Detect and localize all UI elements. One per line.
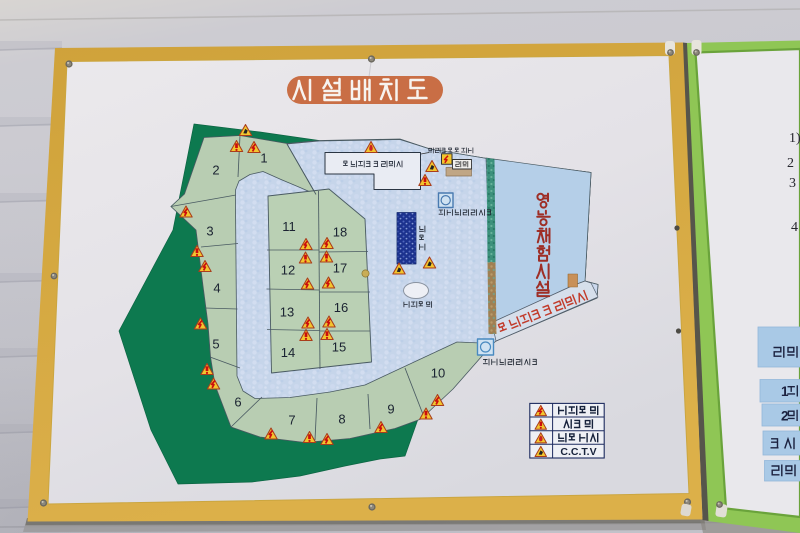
svg-text:13: 13 xyxy=(280,305,294,320)
svg-text:8: 8 xyxy=(338,412,345,427)
svg-text:16: 16 xyxy=(334,300,348,315)
svg-text:C.C.T.V: C.C.T.V xyxy=(560,446,596,458)
svg-text:10: 10 xyxy=(431,366,445,381)
svg-text:11: 11 xyxy=(282,219,296,234)
svg-text:2: 2 xyxy=(781,409,789,424)
svg-text:3: 3 xyxy=(206,224,213,239)
svg-text:1): 1) xyxy=(789,131,800,146)
svg-text:2: 2 xyxy=(212,163,219,178)
svg-text:17: 17 xyxy=(333,261,347,276)
svg-text:3: 3 xyxy=(789,176,796,191)
svg-text:4: 4 xyxy=(791,220,798,235)
svg-text:5: 5 xyxy=(212,337,219,352)
svg-text:6: 6 xyxy=(234,395,241,410)
svg-text:2: 2 xyxy=(787,156,794,171)
svg-text:15: 15 xyxy=(332,340,346,355)
svg-text:7: 7 xyxy=(288,413,295,428)
svg-text:18: 18 xyxy=(333,225,347,240)
svg-text:9: 9 xyxy=(387,402,394,417)
svg-text:12: 12 xyxy=(281,263,295,278)
svg-text:4: 4 xyxy=(213,281,220,296)
svg-text:14: 14 xyxy=(281,345,295,360)
svg-text:1: 1 xyxy=(260,151,267,166)
